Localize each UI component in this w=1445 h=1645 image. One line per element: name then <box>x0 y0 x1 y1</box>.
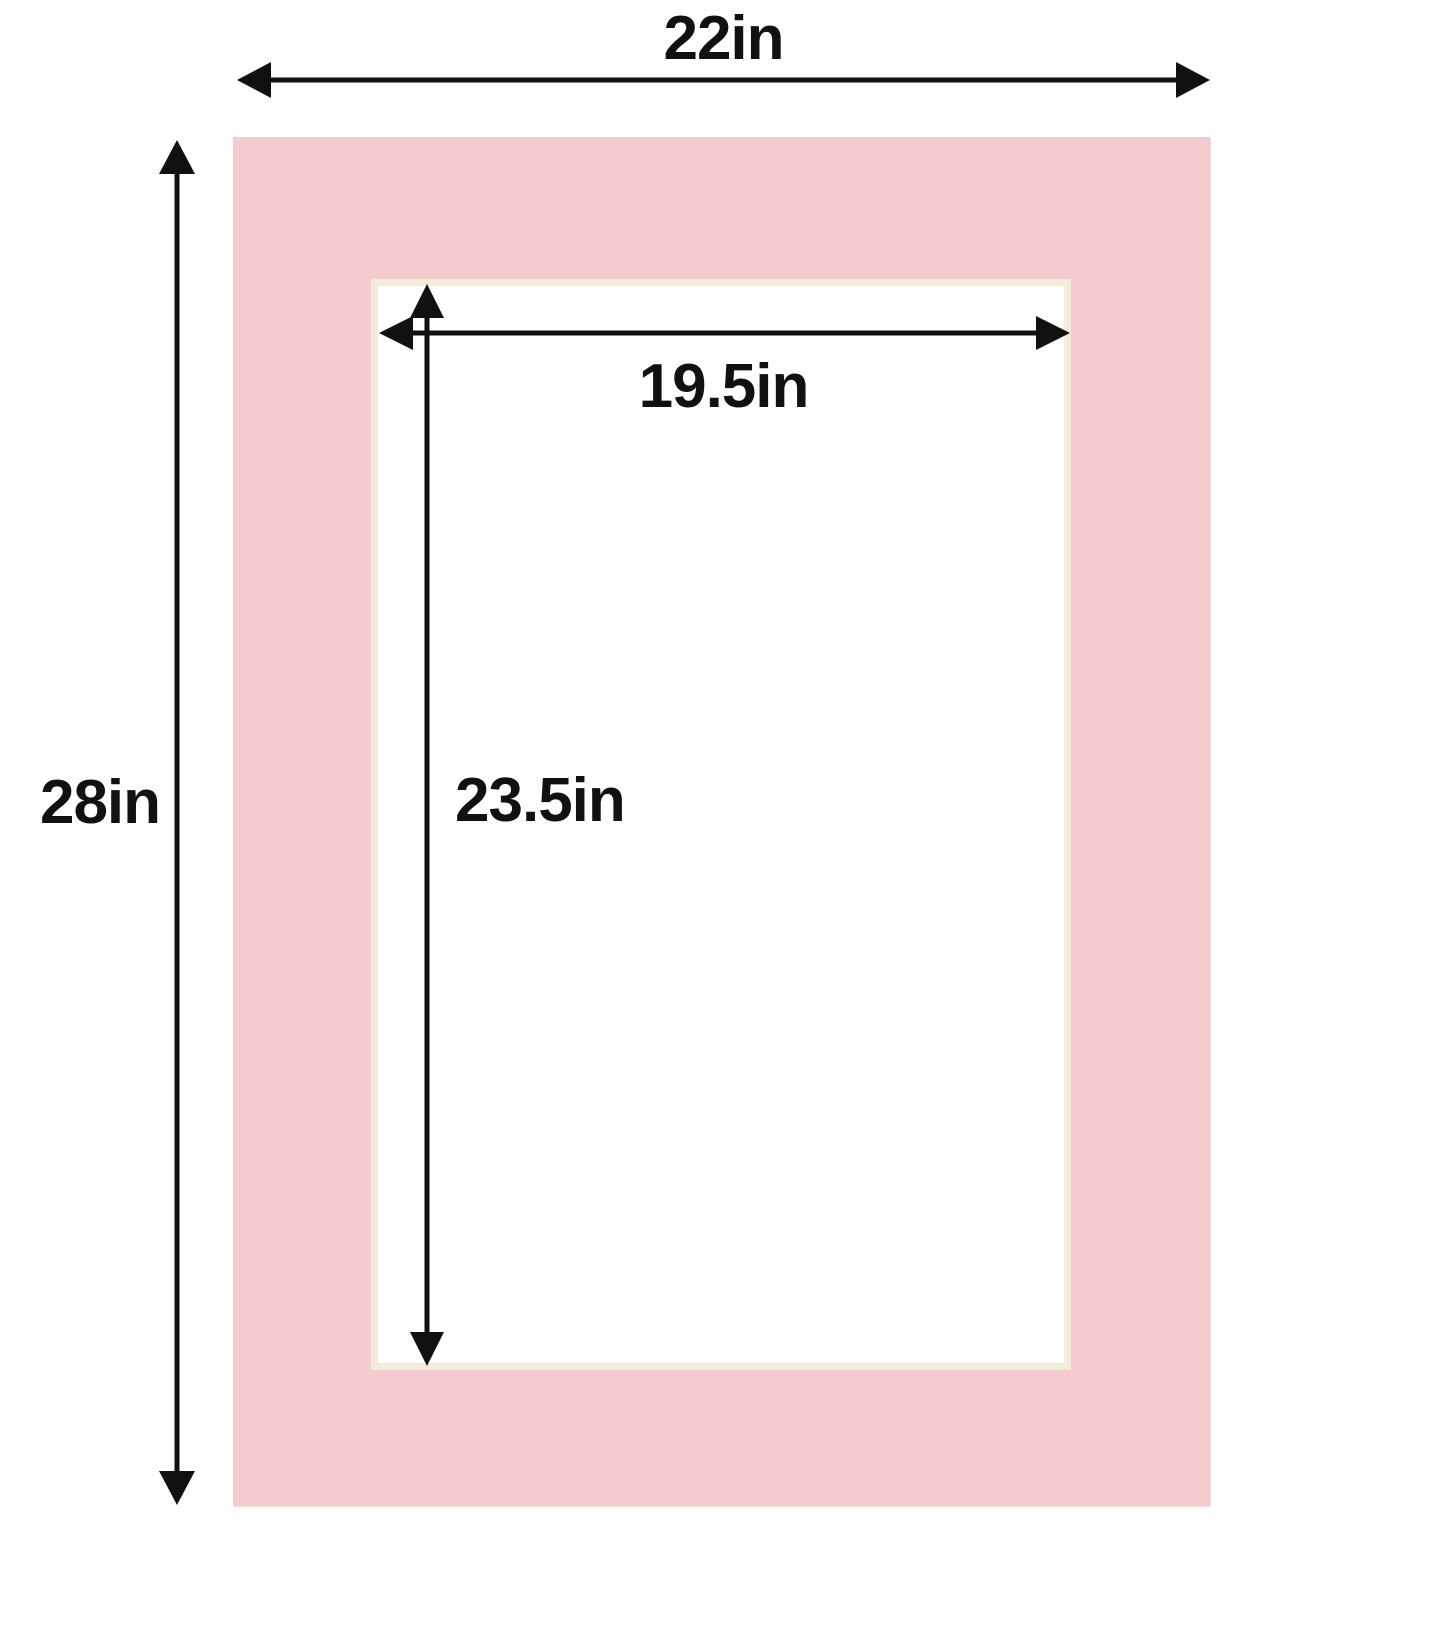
opening-width-label: 19.5in <box>377 356 1070 418</box>
mat-dimension-diagram: 22in 28in 19.5in 23.5in <box>0 0 1445 1645</box>
outer-height-label: 28in <box>20 772 180 834</box>
outer-width-label: 22in <box>237 8 1210 70</box>
opening-height-label: 23.5in <box>455 770 625 832</box>
